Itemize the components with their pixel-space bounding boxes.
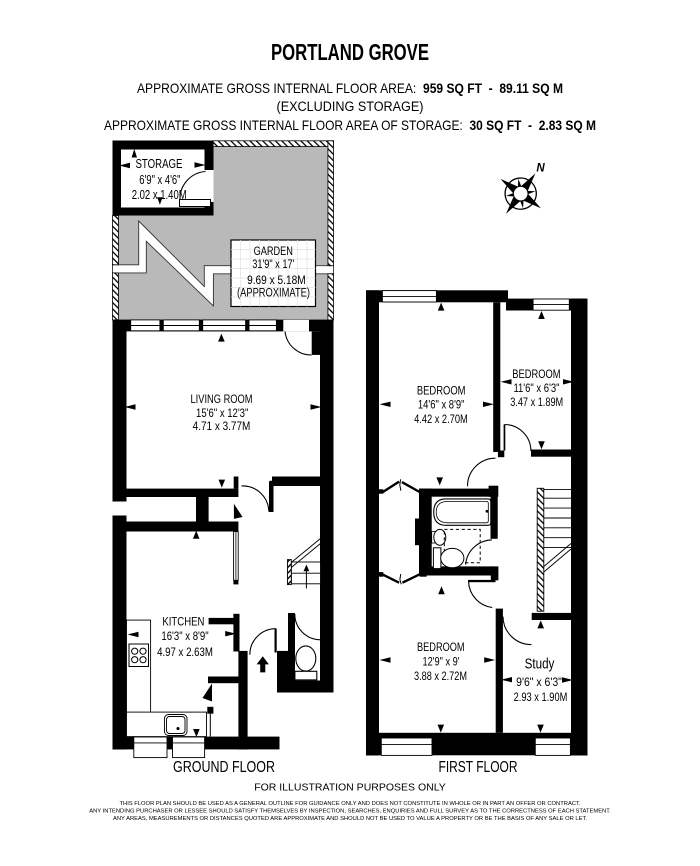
svg-text:N: N [536,163,545,175]
svg-text:ANY INTENDING PURCHASER OR LES: ANY INTENDING PURCHASER OR LESSEE SHOULD… [89,809,611,815]
svg-text:2.93 x 1.90M: 2.93 x 1.90M [514,690,568,704]
svg-text:BEDROOM: BEDROOM [512,367,560,381]
svg-text:APPROXIMATE GROSS INTERNAL FLO: APPROXIMATE GROSS INTERNAL FLOOR AREA OF… [104,117,596,133]
svg-text:31'9" x 17': 31'9" x 17' [252,259,294,271]
svg-text:THIS FLOOR PLAN SHOULD BE USED: THIS FLOOR PLAN SHOULD BE USED AS A GENE… [119,801,580,807]
svg-text:ANY AREAS, MEASUREMENTS OR DIS: ANY AREAS, MEASUREMENTS OR DISTANCES QUO… [113,816,587,822]
svg-text:(APPROXIMATE): (APPROXIMATE) [237,287,310,299]
svg-text:STORAGE: STORAGE [136,157,183,171]
svg-text:APPROXIMATE GROSS INTERNAL FLO: APPROXIMATE GROSS INTERNAL FLOOR AREA: 9… [137,80,563,96]
svg-text:PORTLAND GROVE: PORTLAND GROVE [271,39,429,65]
svg-text:9.69 x 5.18M: 9.69 x 5.18M [247,275,306,287]
svg-text:16'3" x 8'9": 16'3" x 8'9" [161,629,208,643]
svg-text:15'6" x 12'3": 15'6" x 12'3" [196,406,248,420]
svg-text:11'6" x 6'3": 11'6" x 6'3" [513,381,559,395]
svg-text:14'6" x 8'9": 14'6" x 8'9" [418,397,465,411]
svg-text:BEDROOM: BEDROOM [417,640,465,654]
svg-text:Study: Study [525,657,555,673]
svg-text:GROUND FLOOR: GROUND FLOOR [173,759,275,776]
svg-text:3.47 x 1.89M: 3.47 x 1.89M [510,395,563,409]
svg-text:4.97 x 2.63M: 4.97 x 2.63M [157,645,213,659]
svg-text:(EXCLUDING STORAGE): (EXCLUDING STORAGE) [277,99,424,114]
svg-text:4.71 x 3.77M: 4.71 x 3.77M [193,419,251,433]
svg-text:6'9" x 4'6": 6'9" x 4'6" [139,173,180,187]
svg-text:LIVING ROOM: LIVING ROOM [191,392,253,406]
svg-text:9'6" x 6'3": 9'6" x 6'3" [516,675,562,689]
svg-text:3.88 x 2.72M: 3.88 x 2.72M [414,669,467,683]
svg-text:FIRST FLOOR: FIRST FLOOR [439,759,518,776]
svg-text:4.42 x 2.70M: 4.42 x 2.70M [414,412,468,426]
svg-text:BEDROOM: BEDROOM [417,384,466,398]
svg-text:FOR ILLUSTRATION PURPOSES ONLY: FOR ILLUSTRATION PURPOSES ONLY [254,782,446,794]
svg-text:KITCHEN: KITCHEN [162,614,204,628]
svg-text:12'9" x 9': 12'9" x 9' [423,654,460,668]
svg-text:GARDEN: GARDEN [254,246,293,258]
